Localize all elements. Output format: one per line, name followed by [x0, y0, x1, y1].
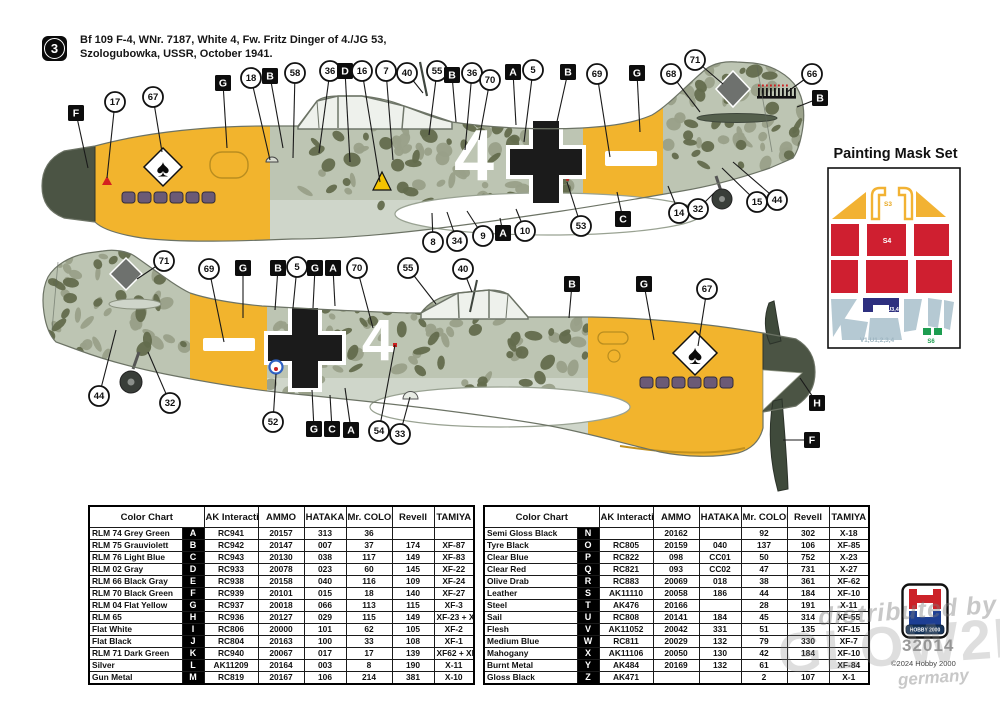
paint-code-cell: XF-87 [434, 540, 474, 552]
color-code-badge: S [577, 588, 599, 600]
color-name: Burnt Metal [484, 660, 577, 672]
color-code-badge: C [182, 552, 204, 564]
paint-code-cell: 135 [787, 624, 829, 636]
color-code-badge: I [182, 624, 204, 636]
paint-code-cell: 139 [392, 648, 434, 660]
paint-code-cell: X-11 [434, 660, 474, 672]
paint-code-cell: RC821 [599, 564, 653, 576]
paint-code-cell: 20164 [258, 660, 304, 672]
color-code-badge: G [182, 600, 204, 612]
color-name: Gloss Black [484, 672, 577, 685]
callout-leader-line [270, 76, 283, 148]
color-name: Clear Blue [484, 552, 577, 564]
paint-code-cell: RC942 [204, 540, 258, 552]
paint-code-cell: X-1 [829, 672, 869, 685]
paint-code-cell: RC936 [204, 612, 258, 624]
column-header: TAMIYA [434, 506, 474, 528]
callout-55: 55 [398, 258, 418, 278]
paint-code-cell: 007 [304, 540, 346, 552]
color-code-badge: R [577, 576, 599, 588]
paint-code-cell: 20101 [258, 588, 304, 600]
paint-code-cell: 37 [346, 540, 392, 552]
svg-text:54: 54 [374, 426, 385, 437]
paint-code-cell: XF-7 [829, 636, 869, 648]
callout-54: 54 [369, 421, 389, 441]
callout-C: C [324, 421, 340, 437]
paint-code-cell: 20067 [258, 648, 304, 660]
column-header: Mr. COLOR [346, 506, 392, 528]
svg-text:40: 40 [458, 264, 469, 275]
color-code-badge: W [577, 636, 599, 648]
paint-code-cell: 174 [392, 540, 434, 552]
paint-code-cell: XF-10 [829, 648, 869, 660]
paint-code-cell: 20163 [258, 636, 304, 648]
paint-code-cell: 149 [392, 552, 434, 564]
color-name: RLM 02 Gray [89, 564, 182, 576]
callout-34: 34 [447, 231, 467, 251]
paint-code-cell: 20018 [258, 600, 304, 612]
paint-code-cell: 28 [741, 600, 787, 612]
callout-B: B [262, 68, 278, 84]
svg-text:H: H [813, 398, 821, 410]
paint-code-cell: AK484 [599, 660, 653, 672]
callout-leader-line [209, 269, 224, 342]
svg-text:70: 70 [352, 263, 363, 274]
callout-D: D [337, 63, 353, 79]
paint-code-cell: 117 [346, 552, 392, 564]
svg-text:B: B [448, 70, 456, 82]
callout-A: A [325, 260, 341, 276]
svg-text:B: B [274, 263, 282, 275]
paint-code-cell: 33 [346, 636, 392, 648]
svg-text:B: B [568, 279, 576, 291]
callout-52: 52 [263, 412, 283, 432]
callout-leader-line [362, 71, 380, 182]
paint-code-cell: 302 [787, 528, 829, 540]
paint-code-cell: 106 [304, 672, 346, 685]
paint-code-cell: 20000 [258, 624, 304, 636]
callout-G: G [636, 276, 652, 292]
paint-code-cell [787, 660, 829, 672]
paint-code-cell: 029 [304, 612, 346, 624]
svg-text:14: 14 [674, 208, 685, 219]
svg-text:71: 71 [159, 256, 170, 267]
paint-code-cell: 20169 [653, 660, 699, 672]
svg-text:67: 67 [702, 284, 713, 295]
paint-code-cell: 20162 [653, 528, 699, 540]
svg-text:18: 18 [246, 73, 257, 84]
callout-10: 10 [515, 221, 535, 241]
callout-7: 7 [376, 61, 396, 81]
paint-code-cell: X-23 [829, 552, 869, 564]
svg-text:A: A [329, 263, 337, 275]
table-row: RLM 74 Grey GreenARC9412015731336 [89, 528, 474, 540]
callout-leader-line [345, 71, 350, 162]
table-row: Clear BluePRC822098CC0150752X-23 [484, 552, 869, 564]
paint-code-cell: X-11 [829, 600, 869, 612]
paint-code-cell: XF-83 [434, 552, 474, 564]
paint-code-cell: 44 [741, 588, 787, 600]
paint-code-cell [392, 528, 434, 540]
svg-text:52: 52 [268, 417, 279, 428]
svg-text:8: 8 [430, 237, 435, 248]
color-code-badge: X [577, 648, 599, 660]
color-name: Olive Drab [484, 576, 577, 588]
callout-5: 5 [287, 257, 307, 277]
callout-71: 71 [685, 50, 705, 70]
svg-text:32: 32 [165, 398, 176, 409]
table-row: RLM 04 Flat YellowGRC93720018066113115XF… [89, 600, 474, 612]
svg-text:53: 53 [576, 221, 587, 232]
callout-G: G [629, 65, 645, 81]
svg-text:44: 44 [772, 195, 783, 206]
paint-code-cell: 331 [699, 624, 741, 636]
table-row: Semi Gloss BlackN2016292302X-18 [484, 528, 869, 540]
paint-code-cell: 20078 [258, 564, 304, 576]
paint-code-cell: XF62 + XF-49 [434, 648, 474, 660]
paint-code-cell: 186 [699, 588, 741, 600]
paint-code-cell: 79 [741, 636, 787, 648]
paint-code-cell: 20166 [653, 600, 699, 612]
column-header: Color Chart [484, 506, 599, 528]
column-header: AK Interactive [204, 506, 258, 528]
svg-text:D: D [341, 66, 349, 78]
paint-code-cell: 018 [699, 576, 741, 588]
color-code-badge: Q [577, 564, 599, 576]
svg-text:A: A [509, 67, 517, 79]
callout-leader-line [637, 73, 640, 132]
paint-code-cell: XF-27 [434, 588, 474, 600]
callout-66: 66 [802, 64, 822, 84]
paint-code-cell: XF-23 + XF-2 [434, 612, 474, 624]
table-row: RLM 71 Dark GreenKRC9402006701717139XF62… [89, 648, 474, 660]
paint-code-cell: RC941 [204, 528, 258, 540]
paint-code-cell: 752 [787, 552, 829, 564]
svg-text:G: G [310, 424, 318, 436]
table-row: RLM 66 Black GrayERC93820158040116109XF-… [89, 576, 474, 588]
paint-code-cell: 381 [392, 672, 434, 685]
callout-leader-line [379, 345, 395, 431]
color-name: Sail [484, 612, 577, 624]
callout-15: 15 [747, 192, 767, 212]
paint-code-cell: 017 [304, 648, 346, 660]
paint-code-cell: 015 [304, 588, 346, 600]
paint-code-cell: 20167 [258, 672, 304, 685]
paint-code-cell: 17 [346, 648, 392, 660]
paint-code-cell: 20130 [258, 552, 304, 564]
svg-text:69: 69 [592, 69, 603, 80]
paint-code-cell: 42 [741, 648, 787, 660]
svg-text:G: G [640, 279, 648, 291]
color-code-badge: D [182, 564, 204, 576]
paint-code-cell: RC933 [204, 564, 258, 576]
paint-code-cell: RC819 [204, 672, 258, 685]
callout-leader-line [319, 71, 330, 153]
svg-text:9: 9 [480, 231, 485, 242]
paint-code-cell: RC811 [599, 636, 653, 648]
callout-H: H [809, 395, 825, 411]
paint-code-cell: 184 [699, 612, 741, 624]
svg-text:C: C [619, 214, 627, 226]
logo-text: HOBBY 2000 [910, 628, 941, 634]
paint-code-cell: 107 [787, 672, 829, 685]
svg-text:A: A [347, 425, 355, 437]
color-code-badge: Z [577, 672, 599, 685]
color-code-badge: A [182, 528, 204, 540]
paint-code-cell: 116 [346, 576, 392, 588]
callout-58: 58 [285, 63, 305, 83]
color-code-badge: L [182, 660, 204, 672]
callout-B: B [564, 276, 580, 292]
svg-text:A: A [499, 228, 507, 240]
color-name: Flesh [484, 624, 577, 636]
paint-code-cell: 8 [346, 660, 392, 672]
callout-40: 40 [453, 259, 473, 279]
paint-code-cell: XF-55 [829, 612, 869, 624]
paint-code-cell: 314 [787, 612, 829, 624]
color-code-badge: E [182, 576, 204, 588]
paint-code-cell: 330 [787, 636, 829, 648]
paint-code-cell: 20158 [258, 576, 304, 588]
paint-code-cell: 20157 [258, 528, 304, 540]
svg-text:70: 70 [485, 75, 496, 86]
color-name: RLM 65 [89, 612, 182, 624]
paint-code-cell: RC940 [204, 648, 258, 660]
paint-code-cell: 214 [346, 672, 392, 685]
color-name: RLM 75 Grauviolett [89, 540, 182, 552]
callout-C: C [615, 211, 631, 227]
table-row: MahoganyXAK111062005013042184XF-10 [484, 648, 869, 660]
svg-text:34: 34 [452, 236, 463, 247]
color-name: Semi Gloss Black [484, 528, 577, 540]
paint-code-cell: 62 [346, 624, 392, 636]
callout-A: A [505, 64, 521, 80]
paint-code-cell: CC01 [699, 552, 741, 564]
callout-44: 44 [767, 190, 787, 210]
callout-leader-line [597, 74, 610, 157]
paint-code-cell: 113 [346, 600, 392, 612]
table-row: Flat BlackJRC8042016310033108XF-1 [89, 636, 474, 648]
paint-code-cell: 100 [304, 636, 346, 648]
callout-leader-line [556, 72, 568, 126]
color-name: RLM 76 Light Blue [89, 552, 182, 564]
paint-code-cell: 190 [392, 660, 434, 672]
svg-text:68: 68 [666, 69, 677, 80]
table-row: RLM 75 GrauviolettBRC9422014700737174XF-… [89, 540, 474, 552]
callout-A: A [495, 225, 511, 241]
svg-text:55: 55 [432, 66, 443, 77]
paint-code-cell: RC805 [599, 540, 653, 552]
color-name: Tyre Black [484, 540, 577, 552]
paint-code-cell [699, 528, 741, 540]
svg-text:58: 58 [290, 68, 301, 79]
svg-text:67: 67 [148, 92, 159, 103]
paint-code-cell: 20058 [653, 588, 699, 600]
callout-G: G [235, 260, 251, 276]
paint-code-cell: 47 [741, 564, 787, 576]
paint-code-cell: 105 [392, 624, 434, 636]
paint-code-cell: 137 [741, 540, 787, 552]
color-code-badge: N [577, 528, 599, 540]
table-row: LeatherSAK111102005818644184XF-10 [484, 588, 869, 600]
svg-text:55: 55 [403, 263, 414, 274]
paint-code-cell: 132 [699, 660, 741, 672]
callout-67: 67 [143, 87, 163, 107]
column-header: HATAKA [699, 506, 741, 528]
column-header: AMMO [258, 506, 304, 528]
svg-text:36: 36 [325, 66, 336, 77]
svg-text:71: 71 [690, 55, 701, 66]
color-conversion-table: Color ChartAK InteractiveAMMOHATAKAMr. C… [88, 505, 475, 685]
column-header: Revell [392, 506, 434, 528]
table-row: FleshVAK110522004233151135XF-15 [484, 624, 869, 636]
svg-text:10: 10 [520, 226, 531, 237]
paint-code-cell: 20141 [653, 612, 699, 624]
paint-code-cell: XF-2 [434, 624, 474, 636]
paint-code-cell: RC937 [204, 600, 258, 612]
svg-text:G: G [311, 263, 319, 275]
paint-code-cell: 109 [392, 576, 434, 588]
paint-code-cell: 149 [392, 612, 434, 624]
paint-code-cell: 108 [392, 636, 434, 648]
callout-B: B [270, 260, 286, 276]
callout-69: 69 [199, 259, 219, 279]
table-row: Medium BlueWRC8112002913279330XF-7 [484, 636, 869, 648]
paint-code-cell: 92 [741, 528, 787, 540]
paint-code-cell: 20029 [653, 636, 699, 648]
table-row: RLM 70 Black GreenFRC9392010101518140XF-… [89, 588, 474, 600]
paint-code-cell: 60 [346, 564, 392, 576]
color-code-badge: H [182, 612, 204, 624]
paint-code-cell: AK11052 [599, 624, 653, 636]
callout-leader-line [386, 71, 393, 160]
callout-leader-line [293, 73, 295, 158]
paint-code-cell: AK11110 [599, 588, 653, 600]
color-name: Gun Metal [89, 672, 182, 685]
callout-33: 33 [390, 424, 410, 444]
paint-code-cell: RC806 [204, 624, 258, 636]
callout-leader-line [223, 83, 227, 148]
paint-code-cell: 61 [741, 660, 787, 672]
paint-code-cell: 040 [304, 576, 346, 588]
svg-text:G: G [239, 263, 247, 275]
svg-text:40: 40 [402, 68, 413, 79]
paint-code-cell: 184 [787, 588, 829, 600]
column-header: TAMIYA [829, 506, 869, 528]
color-name: Silver [89, 660, 182, 672]
paint-code-cell: 115 [346, 612, 392, 624]
callout-F: F [804, 432, 820, 448]
color-code-badge: Y [577, 660, 599, 672]
callout-5: 5 [523, 60, 543, 80]
callout-44: 44 [89, 386, 109, 406]
color-name: Flat White [89, 624, 182, 636]
paint-code-cell: 023 [304, 564, 346, 576]
table-row: Olive DrabRRC8832006901838361XF-62 [484, 576, 869, 588]
paint-code-cell: 361 [787, 576, 829, 588]
paint-code-cell: 20050 [653, 648, 699, 660]
color-name: RLM 04 Flat Yellow [89, 600, 182, 612]
table-row: Flat WhiteIRC8062000010162105XF-2 [89, 624, 474, 636]
svg-text:36: 36 [467, 68, 478, 79]
color-code-badge: K [182, 648, 204, 660]
callout-G: G [306, 421, 322, 437]
paint-code-cell: AK471 [599, 672, 653, 685]
table-row: Gun MetalMRC81920167106214381X-10 [89, 672, 474, 685]
paint-code-cell: 130 [699, 648, 741, 660]
paint-code-cell: 184 [787, 648, 829, 660]
table-row: RLM 76 Light BlueCRC94320130038117149XF-… [89, 552, 474, 564]
svg-text:16: 16 [357, 66, 368, 77]
paint-code-cell: 20147 [258, 540, 304, 552]
column-header: HATAKA [304, 506, 346, 528]
color-code-badge: M [182, 672, 204, 685]
color-name: RLM 74 Grey Green [89, 528, 182, 540]
svg-text:66: 66 [807, 69, 818, 80]
callout-17: 17 [105, 92, 125, 112]
color-code-badge: B [182, 540, 204, 552]
callout-53: 53 [571, 216, 591, 236]
paint-code-cell: XF-22 [434, 564, 474, 576]
svg-text:C: C [328, 424, 336, 436]
svg-text:B: B [564, 67, 572, 79]
paint-code-cell: X-27 [829, 564, 869, 576]
callout-36: 36 [462, 63, 482, 83]
paint-code-cell: 20069 [653, 576, 699, 588]
paint-code-cell: XF-84 [829, 660, 869, 672]
color-name: RLM 66 Black Gray [89, 576, 182, 588]
table-row: SilverLAK11209201640038190X-11 [89, 660, 474, 672]
callout-B: B [444, 67, 460, 83]
svg-text:5: 5 [294, 262, 300, 273]
table-row: Gloss BlackZAK4712107X-1 [484, 672, 869, 685]
paint-code-cell: 731 [787, 564, 829, 576]
paint-code-cell: XF-15 [829, 624, 869, 636]
kit-number: 32014 [902, 636, 954, 656]
paint-code-cell: 20159 [653, 540, 699, 552]
callout-leader-line [76, 113, 88, 168]
color-code-badge: T [577, 600, 599, 612]
callout-71: 71 [154, 251, 174, 271]
paint-code-cell: 145 [392, 564, 434, 576]
callout-32: 32 [688, 199, 708, 219]
paint-code-cell: XF-24 [434, 576, 474, 588]
paint-code-cell: 18 [346, 588, 392, 600]
hobby2000-logo: HOBBY 2000 [901, 583, 949, 644]
table-row: Burnt MetalYAK4842016913261XF-84 [484, 660, 869, 672]
paint-code-cell: 20042 [653, 624, 699, 636]
callout-18: 18 [241, 68, 261, 88]
callout-40: 40 [397, 63, 417, 83]
color-code-badge: P [577, 552, 599, 564]
paint-code-cell: X-10 [434, 672, 474, 685]
color-chart-table-right: Color ChartAK InteractiveAMMOHATAKAMr. C… [483, 505, 870, 685]
paint-code-cell: AK11209 [204, 660, 258, 672]
color-name: Leather [484, 588, 577, 600]
paint-code-cell: 003 [304, 660, 346, 672]
color-name: RLM 70 Black Green [89, 588, 182, 600]
callout-B: B [560, 64, 576, 80]
paint-code-cell: 50 [741, 552, 787, 564]
table-row: Tyre BlackORC80520159040137106XF-85 [484, 540, 869, 552]
svg-text:5: 5 [530, 65, 536, 76]
callout-leader-line [644, 284, 654, 340]
paint-code-cell: 38 [741, 576, 787, 588]
callout-leader-line [251, 78, 270, 160]
paint-code-cell: X-18 [829, 528, 869, 540]
column-header: Revell [787, 506, 829, 528]
paint-code-cell: AK11106 [599, 648, 653, 660]
